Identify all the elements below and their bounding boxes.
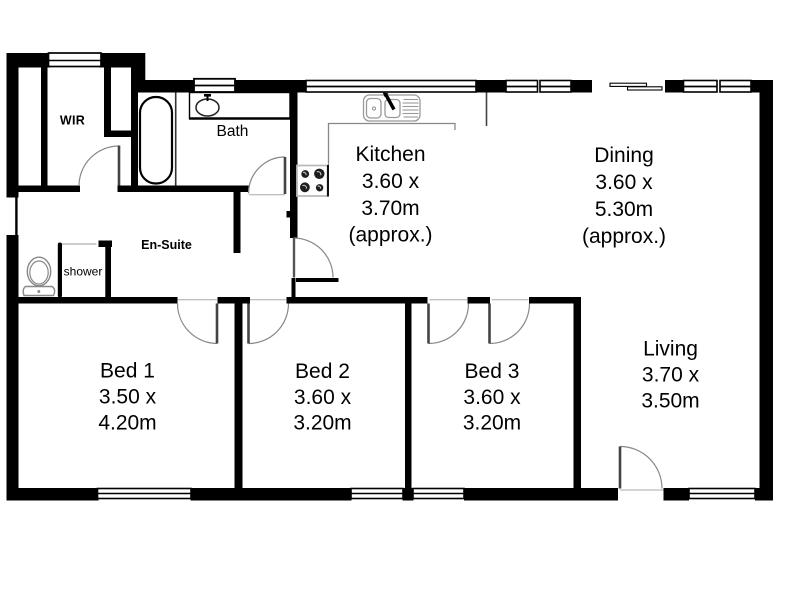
svg-text:3.70 x: 3.70 x [642,364,700,387]
svg-text:3.60 x: 3.60 x [595,171,653,194]
svg-text:Living: Living [643,338,698,361]
svg-text:Bed 1: Bed 1 [100,360,155,383]
svg-text:(approx.): (approx.) [582,225,666,248]
svg-text:3.20m: 3.20m [463,412,521,435]
svg-text:Kitchen: Kitchen [355,143,425,166]
svg-text:WIR: WIR [60,114,85,128]
svg-text:Bath: Bath [217,123,249,140]
svg-text:Bed 2: Bed 2 [295,360,350,383]
svg-text:3.60 x: 3.60 x [294,386,352,409]
svg-text:(approx.): (approx.) [348,224,432,247]
svg-text:3.50m: 3.50m [641,390,699,413]
svg-text:3.20m: 3.20m [293,412,351,435]
svg-text:3.60 x: 3.60 x [362,170,420,193]
svg-text:En-Suite: En-Suite [141,238,192,252]
svg-text:Bed 3: Bed 3 [465,360,520,383]
svg-text:Dining: Dining [594,144,654,167]
svg-text:shower: shower [64,265,103,279]
svg-text:3.50 x: 3.50 x [99,386,157,409]
svg-text:3.60 x: 3.60 x [463,386,521,409]
svg-text:5.30m: 5.30m [595,198,653,221]
svg-text:4.20m: 4.20m [98,412,156,435]
svg-text:3.70m: 3.70m [361,197,419,220]
